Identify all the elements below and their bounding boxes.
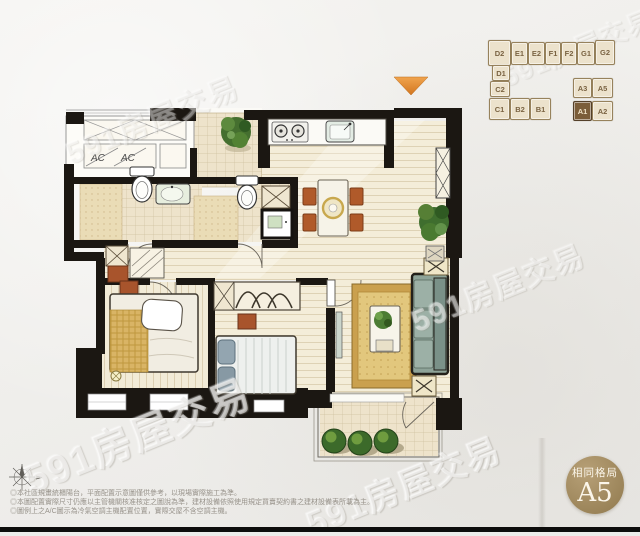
wall-closet bbox=[436, 148, 450, 198]
bathroom-sink-icon bbox=[156, 184, 190, 204]
key-plan-unit-c1: C1 bbox=[489, 98, 510, 120]
key-plan-unit-a1-highlighted: A1 bbox=[573, 101, 592, 121]
floor-plan-page: AC AC bbox=[0, 0, 640, 536]
key-plan-unit-a3: A3 bbox=[573, 78, 592, 98]
key-plan-unit-e2: E2 bbox=[528, 42, 545, 65]
balcony-plants bbox=[322, 429, 404, 456]
key-plan-unit-d1: D1 bbox=[492, 65, 510, 81]
master-bed bbox=[110, 294, 198, 372]
tv-panel bbox=[336, 312, 342, 358]
door-leaf bbox=[327, 280, 335, 306]
sofa bbox=[412, 274, 448, 374]
key-plan-unit-f2: F2 bbox=[561, 42, 577, 65]
toilet-icon bbox=[130, 167, 154, 202]
balcony-sill bbox=[330, 394, 404, 402]
master-bedroom bbox=[110, 281, 198, 381]
disclaimer-line: ◎本圖配置實際尺寸仍應以主管機關核准核定之圖說為準，建材設備依照使用規定買賣契約… bbox=[10, 498, 374, 507]
key-plan-unit-a5: A5 bbox=[592, 78, 613, 98]
hall-cabinets bbox=[106, 246, 164, 282]
sink-icon bbox=[326, 121, 354, 142]
ac-label: AC bbox=[120, 153, 136, 164]
same-layout-badge: 相同格局 A5 bbox=[566, 456, 624, 514]
key-plan-unit-d2: D2 bbox=[488, 40, 511, 66]
toilet-icon bbox=[236, 176, 258, 209]
bed-2 bbox=[216, 336, 296, 394]
key-plan-unit-e1: E1 bbox=[511, 42, 528, 65]
coffee-table bbox=[370, 306, 400, 352]
key-plan-unit-b2: B2 bbox=[510, 98, 530, 120]
nightstand bbox=[238, 314, 256, 329]
key-plan-unit-c2: C2 bbox=[490, 81, 510, 97]
wardrobe bbox=[214, 282, 300, 310]
ac-label: AC bbox=[90, 153, 106, 164]
bottom-edge bbox=[0, 532, 640, 536]
stove-icon bbox=[272, 122, 308, 142]
badge-unit: A5 bbox=[577, 481, 612, 506]
photo-fold-shadow bbox=[538, 438, 546, 528]
key-plan-unit-a2: A2 bbox=[592, 101, 613, 121]
disclaimer-line: ◎圖例上之A/C圖示為冷氣空調主機配置位置，實際交屋不含空調主機。 bbox=[10, 507, 374, 516]
kitchen bbox=[268, 119, 386, 145]
nightstand bbox=[120, 281, 138, 295]
key-plan-unit-g1: G1 bbox=[577, 42, 595, 65]
entrance-arrow-icon bbox=[394, 77, 428, 95]
floor-lamp bbox=[412, 376, 436, 396]
key-plan-unit-b1: B1 bbox=[530, 98, 551, 120]
key-plan-unit-g2: G2 bbox=[595, 40, 615, 65]
compass-icon bbox=[9, 464, 42, 490]
disclaimer-line: ◎本社區規畫統櫃陽台，平面配置示意圖僅供參考，以現場實際施工為準。 bbox=[10, 489, 374, 498]
washbasin-box bbox=[262, 210, 292, 238]
key-plan-unit-f1: F1 bbox=[545, 42, 561, 65]
disclaimer: ◎本社區規畫統櫃陽台，平面配置示意圖僅供參考，以現場實際施工為準。 ◎本圖配置實… bbox=[10, 489, 374, 516]
